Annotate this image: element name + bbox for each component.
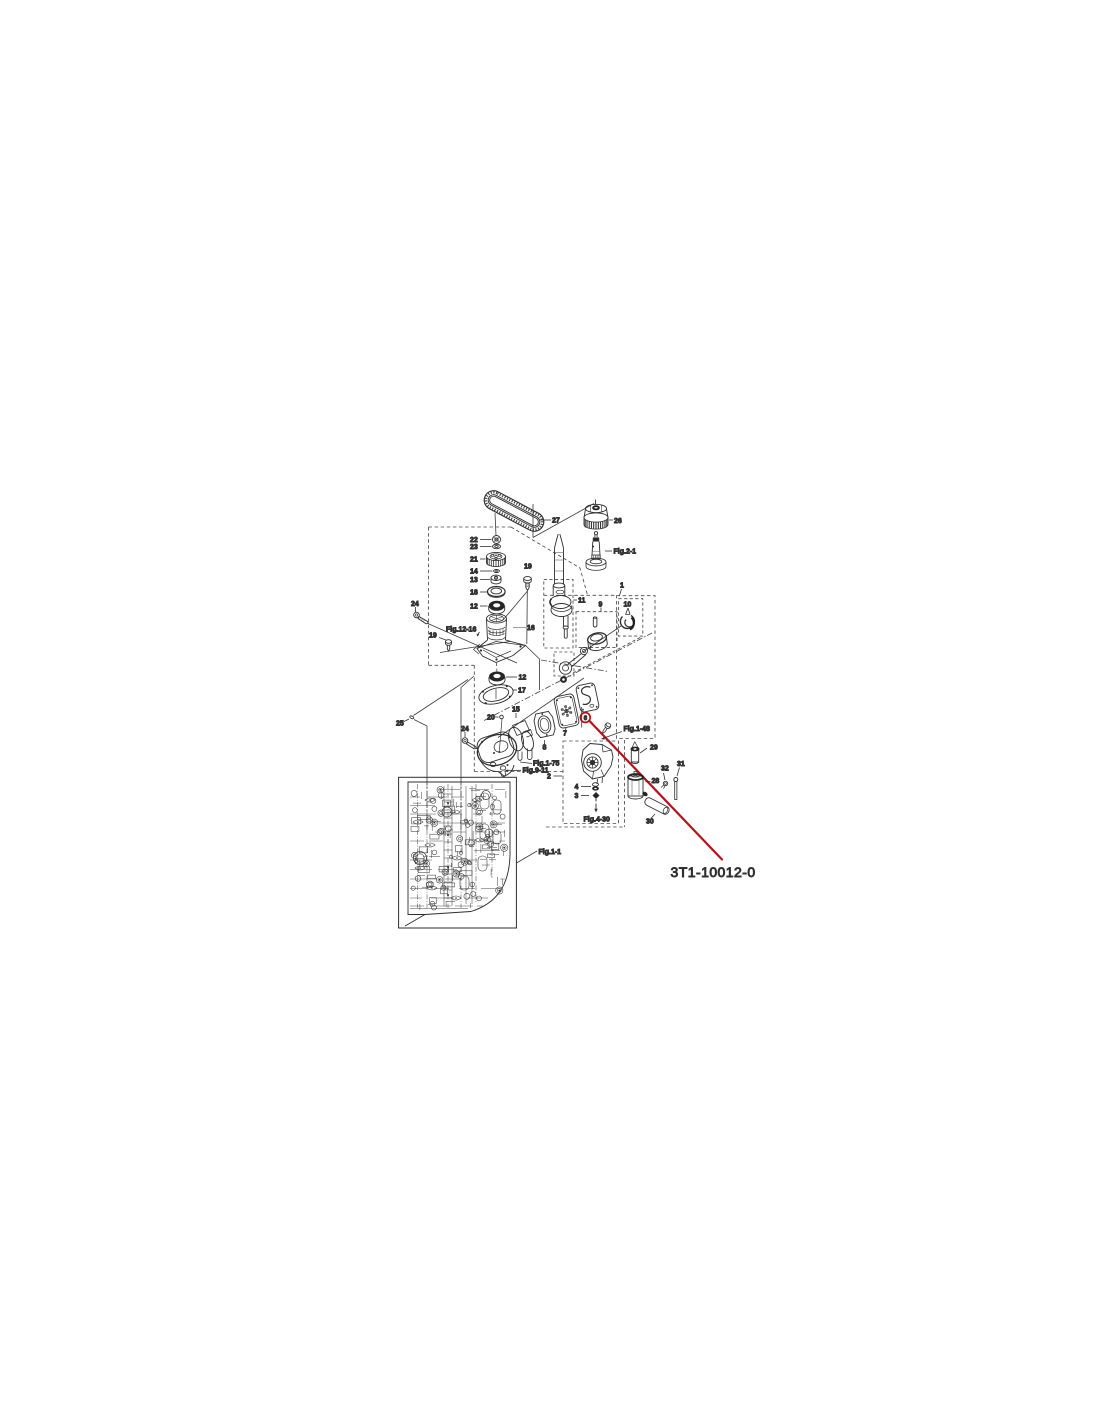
svg-text:8: 8: [543, 745, 547, 752]
svg-text:Fig.2-1: Fig.2-1: [614, 549, 637, 556]
svg-text:7: 7: [563, 731, 567, 738]
svg-text:13: 13: [470, 577, 478, 584]
svg-text:12: 12: [519, 675, 527, 682]
svg-text:20: 20: [487, 714, 495, 721]
svg-text:19: 19: [429, 633, 437, 640]
svg-text:18: 18: [470, 590, 478, 597]
svg-text:26: 26: [614, 518, 622, 525]
svg-text:3: 3: [575, 793, 579, 800]
svg-text:24: 24: [461, 726, 469, 733]
svg-text:Fig.1-48: Fig.1-48: [624, 726, 651, 733]
svg-text:30: 30: [646, 819, 654, 826]
svg-text:Fig.1-1: Fig.1-1: [539, 849, 562, 856]
svg-text:31: 31: [677, 761, 685, 768]
svg-text:Fig.4-30: Fig.4-30: [584, 817, 611, 824]
svg-text:Fig.12-16: Fig.12-16: [446, 627, 476, 634]
svg-text:29: 29: [650, 745, 658, 752]
svg-text:Fig.1-75: Fig.1-75: [533, 761, 560, 768]
svg-text:21: 21: [470, 557, 478, 564]
svg-text:14: 14: [470, 569, 478, 576]
svg-text:Fig.9-11: Fig.9-11: [523, 768, 549, 775]
svg-text:2: 2: [547, 774, 551, 781]
svg-text:22: 22: [470, 537, 478, 544]
svg-text:17: 17: [518, 688, 526, 695]
svg-text:23: 23: [470, 544, 478, 551]
svg-text:25: 25: [396, 721, 404, 728]
svg-text:27: 27: [552, 518, 560, 525]
svg-text:19: 19: [524, 564, 532, 571]
svg-text:3T1-10012-0: 3T1-10012-0: [671, 864, 756, 880]
svg-text:9: 9: [599, 602, 603, 609]
svg-text:28: 28: [652, 778, 660, 785]
svg-text:12: 12: [470, 604, 478, 611]
svg-text:15: 15: [512, 707, 520, 714]
svg-text:11: 11: [578, 598, 586, 605]
svg-text:4: 4: [575, 784, 579, 791]
svg-text:32: 32: [661, 766, 669, 773]
svg-text:24: 24: [411, 601, 419, 608]
svg-text:16: 16: [527, 625, 535, 632]
svg-text:10: 10: [624, 602, 632, 609]
svg-text:1: 1: [620, 583, 624, 590]
